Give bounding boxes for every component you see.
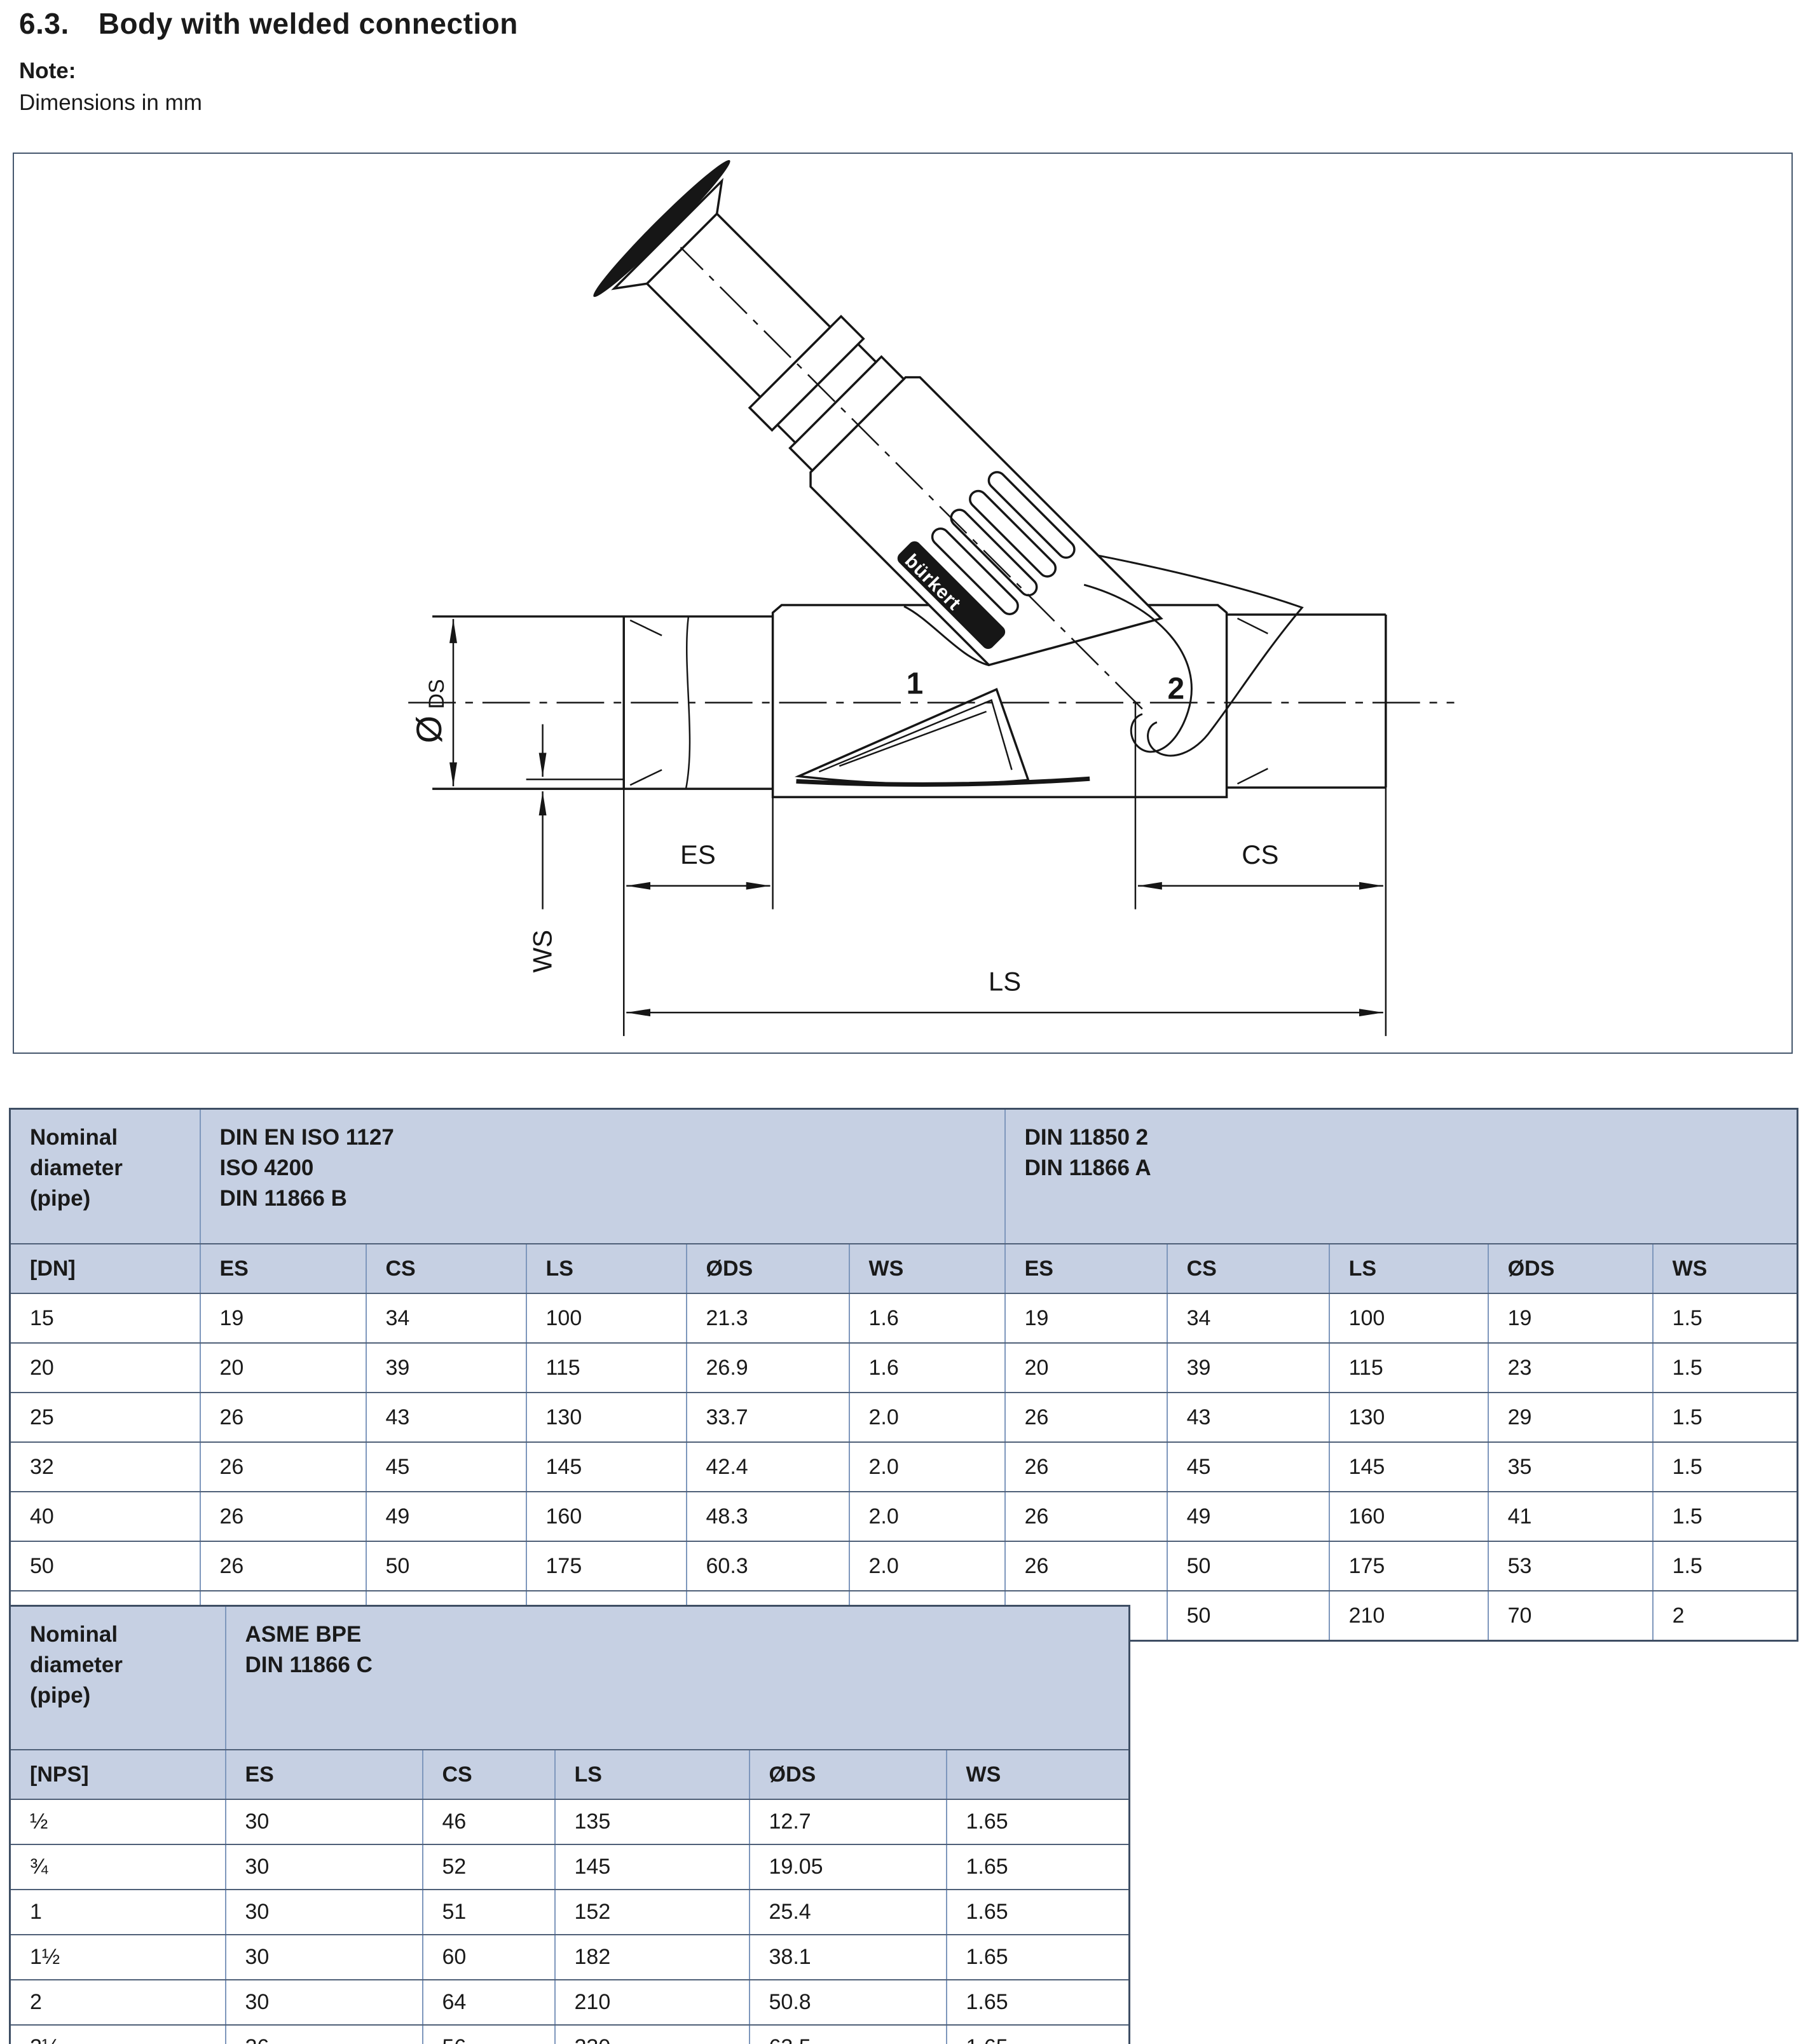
table-row: 1305115225.41.65 xyxy=(10,1890,1130,1935)
dimension-value-cell: 39 xyxy=(1167,1343,1329,1393)
dimension-value-cell: 1.65 xyxy=(947,1980,1130,2025)
dimension-value-cell: 26 xyxy=(200,1442,366,1492)
dimension-value-cell: 26 xyxy=(200,1492,366,1541)
dimension-value-cell: 19 xyxy=(1005,1293,1167,1343)
dimension-value-cell: 34 xyxy=(1167,1293,1329,1343)
note-text: Dimensions in mm xyxy=(19,90,202,116)
asme-column-header-row: [NPS] ES CS LS ØDS WS xyxy=(10,1750,1130,1799)
dimension-value-cell: 135 xyxy=(555,1799,750,1844)
col-header: CS xyxy=(1167,1244,1329,1293)
dimension-value-cell: 1.5 xyxy=(1653,1541,1798,1591)
section-number: 6.3. xyxy=(19,6,69,41)
din-group-header-row: Nominal diameter (pipe) DIN EN ISO 1127 … xyxy=(10,1109,1798,1244)
table-row: 2½265623063.51.65 xyxy=(10,2025,1130,2044)
dimension-value-cell: 19 xyxy=(1488,1293,1653,1343)
dimension-value-cell: 152 xyxy=(555,1890,750,1935)
dimension-value-cell: 49 xyxy=(366,1492,526,1541)
port-1-label: 1 xyxy=(907,667,924,701)
valve-drawing-svg: bürkert xyxy=(14,154,1791,1053)
dimension-value-cell: 23 xyxy=(1488,1343,1653,1393)
dimension-value-cell: 50.8 xyxy=(750,1980,947,2025)
dimension-value-cell: 175 xyxy=(1329,1541,1488,1591)
dimension-value-cell: 12.7 xyxy=(750,1799,947,1844)
datasheet-page: 6.3. Body with welded connection Note: D… xyxy=(0,0,1808,2044)
dimension-value-cell: 29 xyxy=(1488,1393,1653,1442)
col-header: ØDS xyxy=(1488,1244,1653,1293)
dimension-value-cell: 38.1 xyxy=(750,1935,947,1980)
dimension-value-cell: 41 xyxy=(1488,1492,1653,1541)
dimension-value-cell: 1.5 xyxy=(1653,1442,1798,1492)
col-header: WS xyxy=(1653,1244,1798,1293)
dimension-value-cell: 26 xyxy=(1005,1393,1167,1442)
dimension-value-cell: 50 xyxy=(1167,1591,1329,1641)
nominal-diameter-cell: 50 xyxy=(10,1541,200,1591)
dimension-value-cell: 1.5 xyxy=(1653,1293,1798,1343)
weld-bevel-ticks xyxy=(1238,618,1268,784)
dimension-value-cell: 115 xyxy=(1329,1343,1488,1393)
dimension-value-cell: 2 xyxy=(1653,1591,1798,1641)
nominal-diameter-cell: 2 xyxy=(10,1980,226,2025)
dimension-value-cell: 64 xyxy=(423,1980,555,2025)
dimension-value-cell: 145 xyxy=(555,1844,750,1890)
corner-header: Nominal diameter (pipe) xyxy=(10,1109,200,1244)
dimension-value-cell: 42.4 xyxy=(687,1442,849,1492)
nominal-diameter-cell: 25 xyxy=(10,1393,200,1442)
unit-header-nps: [NPS] xyxy=(10,1750,226,1799)
din-table-body: 15193410021.31.61934100191.520203911526.… xyxy=(10,1293,1798,1641)
asme-dimensions-table: Nominal diameter (pipe) ASME BPE DIN 118… xyxy=(9,1605,1130,2044)
dimension-value-cell: 1.6 xyxy=(849,1343,1005,1393)
dimension-value-cell: 175 xyxy=(526,1541,687,1591)
dimension-value-cell: 53 xyxy=(1488,1541,1653,1591)
col-header: WS xyxy=(849,1244,1005,1293)
dimension-value-cell: 145 xyxy=(1329,1442,1488,1492)
dimension-value-cell: 210 xyxy=(1329,1591,1488,1641)
dimension-value-cell: 26 xyxy=(200,1541,366,1591)
din-column-header-row: [DN] ES CS LS ØDS WS ES CS LS ØDS WS xyxy=(10,1244,1798,1293)
dimension-value-cell: 30 xyxy=(226,1890,423,1935)
col-header: ES xyxy=(1005,1244,1167,1293)
note-label: Note: xyxy=(19,58,76,84)
dimension-value-cell: 60.3 xyxy=(687,1541,849,1591)
dimension-value-cell: 30 xyxy=(226,1799,423,1844)
table-row: 1½306018238.11.65 xyxy=(10,1935,1130,1980)
nominal-diameter-cell: 1½ xyxy=(10,1935,226,1980)
col-header: WS xyxy=(947,1750,1130,1799)
dimension-value-cell: 1.6 xyxy=(849,1293,1005,1343)
table-row: 25264313033.72.02643130291.5 xyxy=(10,1393,1798,1442)
dimension-value-cell: 56 xyxy=(423,2025,555,2044)
dimension-value-cell: 30 xyxy=(226,1980,423,2025)
dim-label-diameter: Ø DS xyxy=(409,679,449,743)
dimension-value-cell: 145 xyxy=(526,1442,687,1492)
table-row: 2306421050.81.65 xyxy=(10,1980,1130,2025)
col-header: LS xyxy=(526,1244,687,1293)
col-header: CS xyxy=(366,1244,526,1293)
table-row: ¾305214519.051.65 xyxy=(10,1844,1130,1890)
dimension-value-cell: 50 xyxy=(366,1541,526,1591)
dimension-value-cell: 1.65 xyxy=(947,1799,1130,1844)
dimension-value-cell: 33.7 xyxy=(687,1393,849,1442)
dimension-value-cell: 2.0 xyxy=(849,1541,1005,1591)
port-2-label: 2 xyxy=(1167,672,1184,706)
dimension-value-cell: 35 xyxy=(1488,1442,1653,1492)
dimension-value-cell: 160 xyxy=(526,1492,687,1541)
dimension-value-cell: 19 xyxy=(200,1293,366,1343)
col-header: LS xyxy=(555,1750,750,1799)
dimension-value-cell: 43 xyxy=(1167,1393,1329,1442)
nominal-diameter-cell: ¾ xyxy=(10,1844,226,1890)
dimension-value-cell: 26 xyxy=(1005,1442,1167,1492)
asme-table-body: ½304613512.71.65¾305214519.051.651305115… xyxy=(10,1799,1130,2044)
col-header: ØDS xyxy=(750,1750,947,1799)
dimension-value-cell: 21.3 xyxy=(687,1293,849,1343)
dim-label-es: ES xyxy=(680,840,716,869)
nominal-diameter-cell: ½ xyxy=(10,1799,226,1844)
col-header: ES xyxy=(226,1750,423,1799)
dimension-value-cell: 1.5 xyxy=(1653,1393,1798,1442)
dim-label-cs: CS xyxy=(1242,840,1278,869)
corner-header: Nominal diameter (pipe) xyxy=(10,1606,226,1750)
dimension-value-cell: 182 xyxy=(555,1935,750,1980)
nominal-diameter-cell: 32 xyxy=(10,1442,200,1492)
nominal-diameter-cell: 20 xyxy=(10,1343,200,1393)
dimension-value-cell: 49 xyxy=(1167,1492,1329,1541)
dimension-value-cell: 1.5 xyxy=(1653,1492,1798,1541)
dimension-value-cell: 115 xyxy=(526,1343,687,1393)
table-row: 50265017560.32.02650175531.5 xyxy=(10,1541,1798,1591)
dimension-value-cell: 1.65 xyxy=(947,1844,1130,1890)
dimension-value-cell: 50 xyxy=(1167,1541,1329,1591)
dimension-value-cell: 43 xyxy=(366,1393,526,1442)
unit-header-dn: [DN] xyxy=(10,1244,200,1293)
dimension-value-cell: 20 xyxy=(200,1343,366,1393)
col-header: ØDS xyxy=(687,1244,849,1293)
dimension-value-cell: 34 xyxy=(366,1293,526,1343)
dimension-value-cell: 30 xyxy=(226,1844,423,1890)
table-row: 32264514542.42.02645145351.5 xyxy=(10,1442,1798,1492)
section-title: Body with welded connection xyxy=(99,6,518,41)
dimension-value-cell: 26.9 xyxy=(687,1343,849,1393)
dimension-value-cell: 19.05 xyxy=(750,1844,947,1890)
dimension-value-cell: 30 xyxy=(226,1935,423,1980)
dimension-value-cell: 39 xyxy=(366,1343,526,1393)
nominal-diameter-cell: 15 xyxy=(10,1293,200,1343)
dimension-value-cell: 45 xyxy=(1167,1442,1329,1492)
din-dimensions-table: Nominal diameter (pipe) DIN EN ISO 1127 … xyxy=(9,1108,1798,1642)
dim-label-ws: WS xyxy=(528,930,558,972)
dimension-value-cell: 70 xyxy=(1488,1591,1653,1641)
nominal-diameter-cell: 40 xyxy=(10,1492,200,1541)
nominal-diameter-cell: 1 xyxy=(10,1890,226,1935)
dimension-value-cell: 1.65 xyxy=(947,1890,1130,1935)
dimension-value-cell: 26 xyxy=(1005,1541,1167,1591)
table-row: 40264916048.32.02649160411.5 xyxy=(10,1492,1798,1541)
dimension-value-cell: 51 xyxy=(423,1890,555,1935)
table-row: 15193410021.31.61934100191.5 xyxy=(10,1293,1798,1343)
dimension-value-cell: 1.5 xyxy=(1653,1343,1798,1393)
dimension-value-cell: 2.0 xyxy=(849,1393,1005,1442)
dimension-value-cell: 20 xyxy=(1005,1343,1167,1393)
dimension-value-cell: 210 xyxy=(555,1980,750,2025)
dimension-value-cell: 48.3 xyxy=(687,1492,849,1541)
group-header-asme: ASME BPE DIN 11866 C xyxy=(226,1606,1130,1750)
dimension-value-cell: 160 xyxy=(1329,1492,1488,1541)
dimension-value-cell: 25.4 xyxy=(750,1890,947,1935)
dimension-value-cell: 130 xyxy=(526,1393,687,1442)
dim-label-ls: LS xyxy=(989,966,1021,996)
dimension-value-cell: 1.65 xyxy=(947,1935,1130,1980)
dimension-value-cell: 100 xyxy=(526,1293,687,1343)
dimension-value-cell: 2.0 xyxy=(849,1442,1005,1492)
dimension-value-cell: 130 xyxy=(1329,1393,1488,1442)
dimension-value-cell: 45 xyxy=(366,1442,526,1492)
dimension-value-cell: 2.0 xyxy=(849,1492,1005,1541)
dimension-value-cell: 100 xyxy=(1329,1293,1488,1343)
dimension-value-cell: 26 xyxy=(1005,1492,1167,1541)
dimension-value-cell: 60 xyxy=(423,1935,555,1980)
table-row: ½304613512.71.65 xyxy=(10,1799,1130,1844)
dimension-value-cell: 63.5 xyxy=(750,2025,947,2044)
asme-group-header-row: Nominal diameter (pipe) ASME BPE DIN 118… xyxy=(10,1606,1130,1750)
group-header-din-11850: DIN 11850 2 DIN 11866 A xyxy=(1005,1109,1798,1244)
page-title: 6.3. Body with welded connection xyxy=(19,6,518,41)
col-header: LS xyxy=(1329,1244,1488,1293)
group-header-din-iso: DIN EN ISO 1127 ISO 4200 DIN 11866 B xyxy=(200,1109,1005,1244)
col-header: CS xyxy=(423,1750,555,1799)
nominal-diameter-cell: 2½ xyxy=(10,2025,226,2044)
dimension-value-cell: 1.65 xyxy=(947,2025,1130,2044)
table-row: 20203911526.91.62039115231.5 xyxy=(10,1343,1798,1393)
dimension-value-cell: 26 xyxy=(200,1393,366,1442)
dimension-value-cell: 46 xyxy=(423,1799,555,1844)
dimension-value-cell: 26 xyxy=(226,2025,423,2044)
col-header: ES xyxy=(200,1244,366,1293)
dimension-value-cell: 52 xyxy=(423,1844,555,1890)
dimension-value-cell: 230 xyxy=(555,2025,750,2044)
technical-drawing: bürkert xyxy=(13,153,1793,1054)
